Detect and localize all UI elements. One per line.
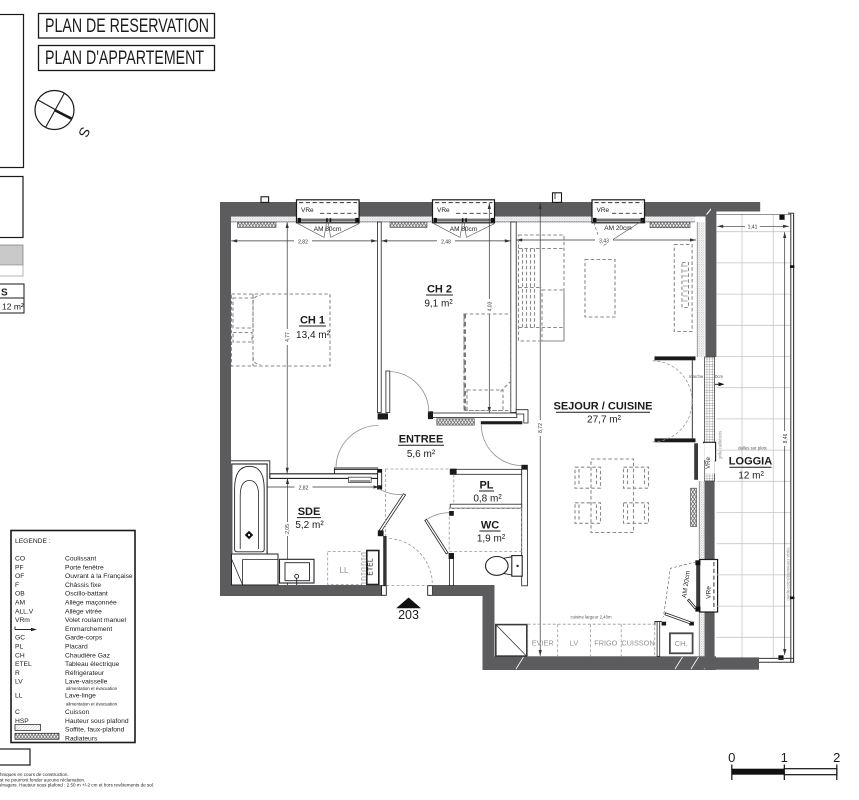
svg-text:garde-corps/panneaux vitrés: garde-corps/panneaux vitrés	[786, 547, 791, 600]
svg-text:HSP: HSP	[15, 718, 29, 725]
svg-text:1,41: 1,41	[748, 225, 758, 231]
svg-text:ETEL: ETEL	[15, 661, 32, 668]
svg-text:VRe: VRe	[597, 207, 610, 214]
svg-text:CUISSON: CUISSON	[621, 639, 654, 648]
svg-text:Allège maçonnée: Allège maçonnée	[65, 600, 117, 607]
svg-text:ALL.V: ALL.V	[15, 608, 34, 615]
svg-text:VRm: VRm	[15, 617, 30, 624]
svg-text:Cuisson: Cuisson	[65, 709, 89, 716]
svg-text:13,4 m²: 13,4 m²	[296, 330, 331, 341]
svg-text:SEJOUR / CUISINE: SEJOUR / CUISINE	[553, 401, 652, 413]
svg-text:ENTREE: ENTREE	[399, 434, 444, 446]
svg-text:5,2 m²: 5,2 m²	[295, 520, 324, 531]
svg-text:1,9 m²: 1,9 m²	[477, 534, 506, 545]
svg-text:3,43: 3,43	[599, 238, 609, 244]
svg-text:VRe: VRe	[706, 586, 713, 599]
svg-text:OF: OF	[15, 573, 24, 580]
svg-text:PL: PL	[479, 480, 493, 492]
svg-text:alimentation et évacuation: alimentation et évacuation	[66, 702, 118, 707]
svg-text:Oscillo-battant: Oscillo-battant	[65, 591, 108, 598]
svg-text:Hauteur sous plafond: Hauteur sous plafond	[65, 718, 129, 725]
svg-text:2,05: 2,05	[285, 524, 291, 534]
svg-text:5,6 m²: 5,6 m²	[407, 449, 436, 460]
svg-text:Soffite, faux-plafond: Soffite, faux-plafond	[65, 727, 125, 734]
svg-text:4,03: 4,03	[487, 301, 493, 311]
svg-text:1: 1	[781, 750, 788, 765]
svg-text:LL: LL	[340, 566, 349, 575]
svg-text:Châssis fixe: Châssis fixe	[65, 582, 101, 589]
svg-text:203: 203	[398, 608, 419, 622]
svg-text:PF: PF	[15, 564, 24, 571]
svg-text:0,8 m²: 0,8 m²	[473, 494, 502, 505]
svg-text:LV: LV	[15, 679, 23, 686]
svg-text:Garde-corps: Garde-corps	[65, 635, 103, 642]
svg-text:LV: LV	[570, 639, 579, 648]
svg-text:Tableau électrique: Tableau électrique	[65, 661, 120, 668]
svg-text:R: R	[15, 670, 20, 677]
svg-text:4,77: 4,77	[285, 332, 291, 342]
svg-text:12 m²: 12 m²	[738, 471, 764, 482]
svg-text:Volet roulant manuel: Volet roulant manuel	[65, 617, 126, 624]
svg-text:AM: AM	[15, 600, 25, 607]
svg-text:LEGENDE :: LEGENDE :	[15, 538, 51, 545]
svg-text:Allège vitrée: Allège vitrée	[65, 608, 102, 615]
svg-text:Porte fenêtre: Porte fenêtre	[65, 564, 104, 571]
svg-text:0: 0	[728, 750, 735, 765]
svg-text:cuisine largeur 2,40m: cuisine largeur 2,40m	[570, 615, 612, 620]
svg-text:S: S	[1, 288, 8, 299]
svg-text:Ouvrant à la Française: Ouvrant à la Française	[65, 573, 133, 580]
svg-text:2,82: 2,82	[298, 239, 308, 245]
svg-text:dalles sur plots: dalles sur plots	[738, 446, 767, 451]
svg-text:grille caillebotis: grille caillebotis	[718, 431, 723, 459]
svg-text:8,46: 8,46	[783, 433, 789, 443]
svg-text:CH 1: CH 1	[300, 315, 325, 327]
svg-text:27,7 m²: 27,7 m²	[587, 415, 622, 426]
svg-text:alimentation et évacuation: alimentation et évacuation	[66, 686, 118, 691]
svg-text:LOGGIA: LOGGIA	[729, 456, 772, 468]
svg-text:CO: CO	[15, 556, 25, 563]
svg-text:C: C	[15, 709, 20, 716]
svg-text:VRe: VRe	[437, 207, 450, 214]
svg-text:Emmarchement: Emmarchement	[65, 626, 112, 633]
svg-text:VRe: VRe	[301, 207, 314, 214]
svg-text:AM 80cm: AM 80cm	[314, 226, 341, 233]
svg-text:Lave-vaisselle: Lave-vaisselle	[65, 679, 108, 686]
svg-text:CH: CH	[15, 652, 25, 659]
svg-text:PL: PL	[15, 644, 23, 651]
svg-text:AM 20cm: AM 20cm	[604, 225, 631, 232]
svg-text:2: 2	[833, 750, 840, 765]
svg-text:FRIGO: FRIGO	[594, 639, 617, 648]
svg-text:SDE: SDE	[298, 506, 321, 518]
svg-text:GC: GC	[15, 635, 25, 642]
svg-text:CH.: CH.	[675, 639, 688, 648]
svg-text:CH 2: CH 2	[427, 284, 452, 296]
svg-text:ETEL: ETEL	[368, 558, 375, 576]
svg-text:8,72: 8,72	[538, 423, 544, 433]
svg-text:LL: LL	[15, 693, 23, 700]
svg-text:Placard: Placard	[65, 644, 88, 651]
svg-text:VRe: VRe	[706, 457, 712, 469]
svg-text:Radiateurs: Radiateurs	[65, 735, 98, 742]
svg-text:2,82: 2,82	[299, 485, 309, 491]
svg-text:PLAN DE RESERVATION: PLAN DE RESERVATION	[45, 15, 209, 37]
svg-text:énagers. Hauteur sous plafond: énagers. Hauteur sous plafond : 2.50 m +…	[0, 783, 154, 788]
svg-text:PLAN D'APPARTEMENT: PLAN D'APPARTEMENT	[45, 47, 204, 69]
svg-text:Réfrigérateur: Réfrigérateur	[65, 670, 105, 677]
svg-text:Chaudière Gaz: Chaudière Gaz	[65, 652, 111, 659]
svg-text:WC: WC	[481, 520, 499, 532]
svg-text:Coulissant: Coulissant	[65, 556, 96, 563]
svg-text:hniques en cours de constructi: hniques en cours de construction.	[0, 772, 69, 777]
svg-text:EVIER: EVIER	[532, 639, 554, 648]
svg-text:2,48: 2,48	[441, 239, 451, 245]
svg-text:12 m²: 12 m²	[2, 302, 24, 312]
svg-text:OB: OB	[15, 591, 25, 598]
svg-text:9,1 m²: 9,1 m²	[424, 299, 453, 310]
svg-text:F: F	[15, 582, 19, 589]
svg-text:AM 80cm: AM 80cm	[450, 226, 477, 233]
svg-text:Lave-linge: Lave-linge	[65, 693, 96, 700]
svg-text:st ne pourront fonder aucune r: st ne pourront fonder aucune réclamation…	[0, 777, 85, 782]
